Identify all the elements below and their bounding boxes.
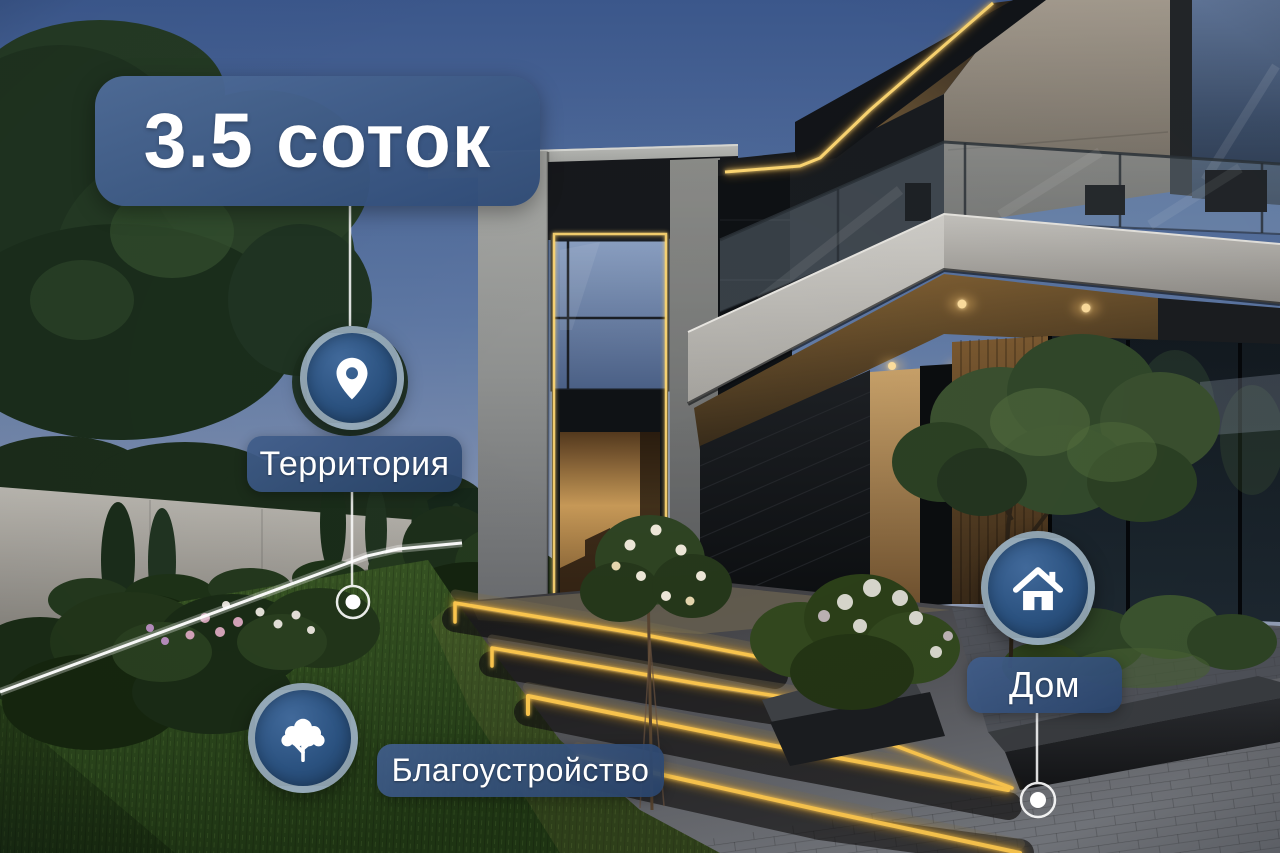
house-icon bbox=[1004, 554, 1072, 622]
territory-label-text: Территория bbox=[260, 445, 450, 484]
house-label: Дом bbox=[967, 657, 1122, 713]
area-size-badge: 3.5 соток bbox=[95, 76, 540, 206]
house-marker bbox=[981, 531, 1095, 645]
tree-icon bbox=[270, 705, 336, 771]
annotated-property-photo: 3.5 соток Территория Благоустройство Дом bbox=[0, 0, 1280, 853]
landscaping-label-text: Благоустройство bbox=[392, 752, 650, 789]
landscaping-label: Благоустройство bbox=[377, 744, 664, 797]
landscaping-marker bbox=[248, 683, 358, 793]
territory-label: Территория bbox=[247, 436, 462, 492]
territory-marker bbox=[300, 326, 404, 430]
area-size-text: 3.5 соток bbox=[144, 97, 492, 186]
house-label-text: Дом bbox=[1009, 664, 1080, 706]
location-pin-icon bbox=[321, 347, 383, 409]
